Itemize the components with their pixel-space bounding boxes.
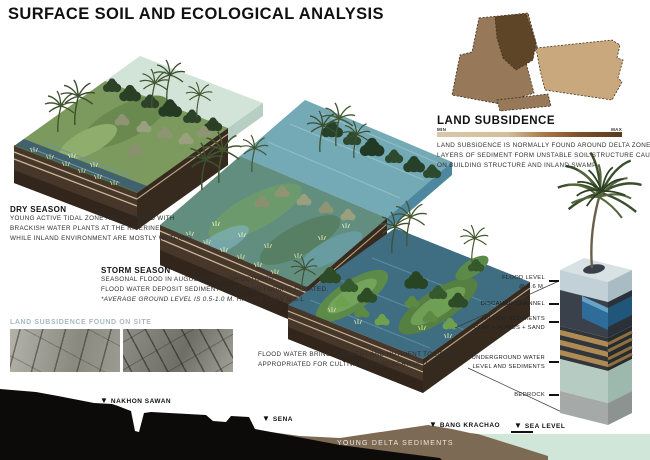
survey-marker-icon: ▼ xyxy=(262,415,270,423)
site-photos-heading: LAND SUBSIDENCE FOUND ON SITE xyxy=(10,319,151,326)
soil-column-label-flood-sediments: FLOOD SEDIMENTS CLAY + HUMUS + SAND xyxy=(425,315,545,332)
land-subsidence-section: LAND SUBSIDENCE MIN MAX LAND SUBSIDENCE … xyxy=(437,115,650,171)
scale-max-label: MAX xyxy=(611,127,622,132)
storm-season-line: SEASONAL FLOOD IN AUGUST THROUGH OCTOBER… xyxy=(101,275,329,285)
dry-season-section: DRY SEASON YOUNG ACTIVE TIDAL ZONE ARE C… xyxy=(10,205,194,244)
land-subsidence-line: LAND SUBSIDENCE IS NORMALLY FOUND AROUND… xyxy=(437,141,650,151)
analysis-board: SURFACE SOIL AND ECOLOGICAL ANALYSIS DRY… xyxy=(0,0,650,460)
dry-season-line: BRACKISH WATER PLANTS AT THE RIVERINE. xyxy=(10,224,194,234)
dry-season-heading: DRY SEASON xyxy=(10,205,194,214)
soil-column-label-discahrd-channel: DISCAHRD CHANNEL xyxy=(425,300,545,309)
dry-season-line: WHILE INLAND ENVIRONMENT ARE MOSTLY WETL… xyxy=(10,234,194,244)
sea-level-line xyxy=(511,431,533,433)
land-subsidence-line: LAYERS OF SEDIMENT FORM UNSTABLE SOIL ST… xyxy=(437,151,650,161)
soil-column-label-underground-water: UNDERGROUND WATER LEVEL AND SEDIMENTS xyxy=(425,354,545,371)
soil-column-label-flood-level: FLOOD LEVEL @ 0.6 M. xyxy=(425,274,545,291)
dry-season-line: YOUNG ACTIVE TIDAL ZONE ARE COVERED WITH xyxy=(10,214,194,224)
survey-marker-icon: ▼ xyxy=(429,421,437,429)
storm-season-line: FLOOD WATER DEPOSIT SEDIMENT WHAT LAND F… xyxy=(101,285,329,295)
section-marker-sena: ▼ SENA xyxy=(262,415,293,424)
soil-column-label-bedrock: BEDROCK xyxy=(425,391,545,400)
storm-season-heading: STORM SEASON xyxy=(101,266,329,275)
land-subsidence-heading: LAND SUBSIDENCE xyxy=(437,115,650,127)
subsidence-photo-2 xyxy=(123,329,233,372)
storm-season-section: STORM SEASON SEASONAL FLOOD IN AUGUST TH… xyxy=(101,266,329,305)
page-title: SURFACE SOIL AND ECOLOGICAL ANALYSIS xyxy=(8,5,384,24)
section-marker-bang-krachao: ▼ BANG KRACHAO xyxy=(429,421,500,430)
subsidence-photo-1 xyxy=(10,329,120,372)
survey-marker-icon: ▼ xyxy=(514,422,522,430)
young-delta-sediments-label: YOUNG DELTA SEDIMENTS xyxy=(337,440,454,447)
soil-column-diagram xyxy=(558,153,642,426)
scale-min-label: MIN xyxy=(437,127,446,132)
land-subsidence-line: ON BUILDING STRUCTURE AND INLAND SWAMP. xyxy=(437,161,650,171)
section-marker-sea-level: ▼ SEA LEVEL xyxy=(514,422,565,431)
survey-marker-icon: ▼ xyxy=(100,397,108,405)
storm-season-note: *AVERAGE GROUND LEVEL IS 0.5-1.0 M. HIGH… xyxy=(101,295,329,305)
section-marker-nakhon-sawan: ▼ NAKHON SAWAN xyxy=(100,397,171,406)
subsidence-map xyxy=(452,13,623,111)
